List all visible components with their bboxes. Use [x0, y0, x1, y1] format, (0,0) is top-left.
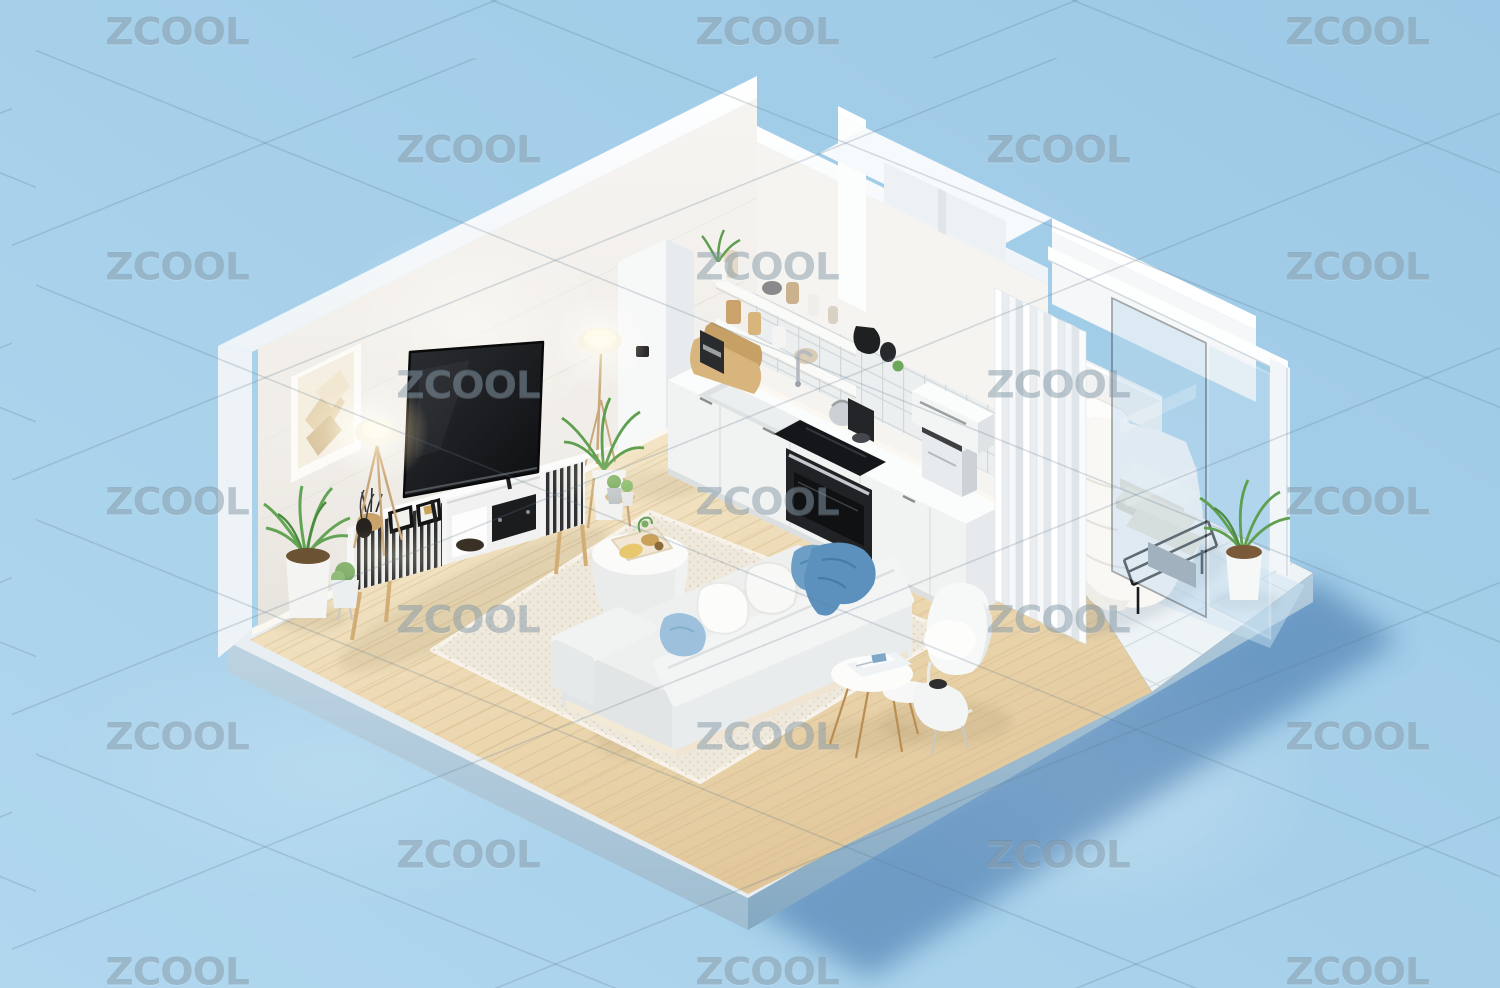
- white-pillow: [745, 563, 796, 614]
- seat-cushion: [924, 620, 976, 660]
- apartment-render: [0, 0, 1500, 988]
- herb-cup: [893, 361, 904, 372]
- remote: [929, 679, 947, 689]
- compartment-divider: [938, 188, 946, 235]
- curtain: [995, 288, 1086, 644]
- stock-image-canvas: Open-plan studio apartment cutaway: livi…: [0, 0, 1500, 988]
- wall-end-cap: [218, 346, 252, 658]
- glass-pane-dark-frame: [1112, 298, 1206, 617]
- white-pillow: [697, 583, 748, 634]
